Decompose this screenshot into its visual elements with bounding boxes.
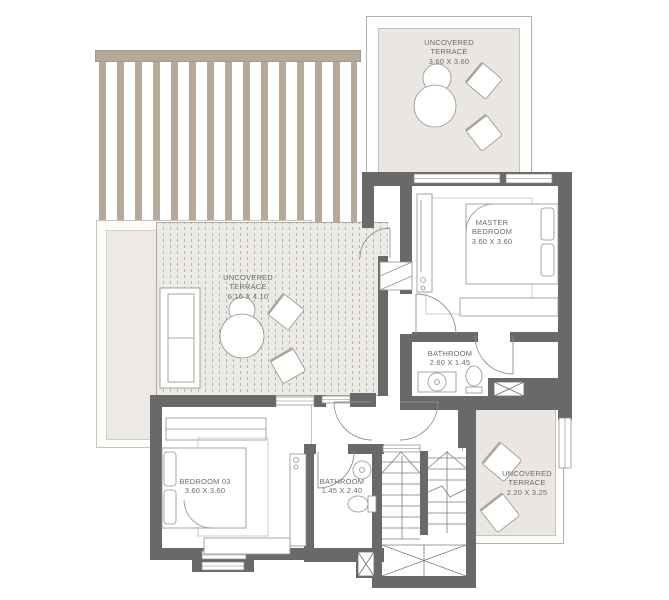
room-name: UNCOVERED TERRACE <box>477 469 577 488</box>
room-dims: 3.60 X 3.60 <box>399 57 499 66</box>
pillow <box>541 208 554 240</box>
toilet <box>348 496 368 512</box>
bathroom-upper-fixtures <box>418 366 482 393</box>
plan-graphics <box>0 0 669 600</box>
room-dims: 1.45 X 2.40 <box>292 486 392 495</box>
room-name: UNCOVERED TERRACE <box>198 273 298 292</box>
terrace-main-label: UNCOVERED TERRACE 6.10 X 4.10 <box>198 273 298 301</box>
bathroom-lower-label: BATHROOM 1.45 X 2.40 <box>292 477 392 496</box>
toilet <box>466 366 482 386</box>
chair <box>480 493 519 532</box>
chair <box>466 115 502 151</box>
room-name: BEDROOM 03 <box>155 477 255 486</box>
pillow <box>541 244 554 276</box>
master-bedroom-label: MASTER BEDROOM 3.60 X 3.60 <box>442 218 542 246</box>
room-dims: 3.60 X 3.60 <box>155 486 255 495</box>
room-dims: 3.60 X 3.60 <box>442 237 542 246</box>
corridor-closet <box>380 262 412 290</box>
room-dims: 2.60 X 1.45 <box>400 358 500 367</box>
door-terrace <box>360 228 390 258</box>
floor-plan: UNCOVERED TERRACE 3.60 X 3.60 MASTER BED… <box>0 0 669 600</box>
chair <box>466 63 503 100</box>
bathroom-upper-label: BATHROOM 2.60 X 1.45 <box>400 349 500 368</box>
round-table <box>220 314 264 358</box>
terrace-top-label: UNCOVERED TERRACE 3.60 X 3.60 <box>399 38 499 66</box>
master-bedroom-furniture <box>417 194 558 316</box>
room-dims: 2.20 X 3.25 <box>477 488 577 497</box>
door-bedroom-03 <box>334 402 372 440</box>
room-dims: 6.10 X 4.10 <box>198 292 298 301</box>
room-name: BATHROOM <box>292 477 392 486</box>
room-name: MASTER BEDROOM <box>442 218 542 237</box>
terrace-top-furniture <box>414 63 502 152</box>
room-name: UNCOVERED TERRACE <box>399 38 499 57</box>
terrace-main-furniture <box>160 288 306 388</box>
room-name: BATHROOM <box>400 349 500 358</box>
round-table <box>414 85 456 127</box>
bedroom-03-label: BEDROOM 03 3.60 X 3.60 <box>155 477 255 496</box>
terrace-bottom-label: UNCOVERED TERRACE 2.20 X 3.25 <box>477 469 577 497</box>
chair <box>270 348 306 384</box>
